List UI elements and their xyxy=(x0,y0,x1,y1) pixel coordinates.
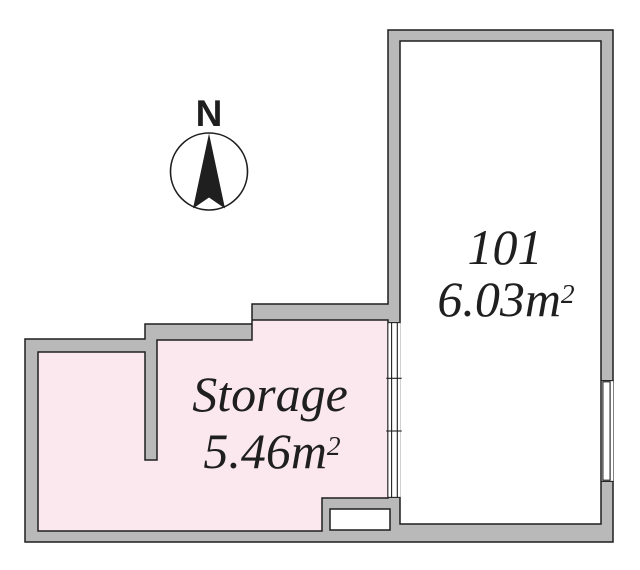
room-101-area-sup: 2 xyxy=(561,278,575,309)
compass xyxy=(171,133,248,210)
storage-room-area-value: 5.46m xyxy=(203,423,327,479)
room-101-label: 101 xyxy=(405,221,605,273)
compass-north-label: N xyxy=(177,94,241,134)
storage-room-area-sup: 2 xyxy=(327,430,341,461)
room-101-area-value: 6.03m xyxy=(437,271,561,327)
window-right-wall xyxy=(601,380,613,481)
compass-needle-icon xyxy=(193,134,225,209)
storage-room-label: Storage xyxy=(170,368,370,420)
storage-room-area: 5.46m2 xyxy=(172,425,372,477)
window-between-storage-and-101 xyxy=(386,322,401,498)
floorplan: N 101 6.03m2 Storage 5.46m2 xyxy=(0,0,640,570)
room-101-area: 6.03m2 xyxy=(406,273,606,325)
